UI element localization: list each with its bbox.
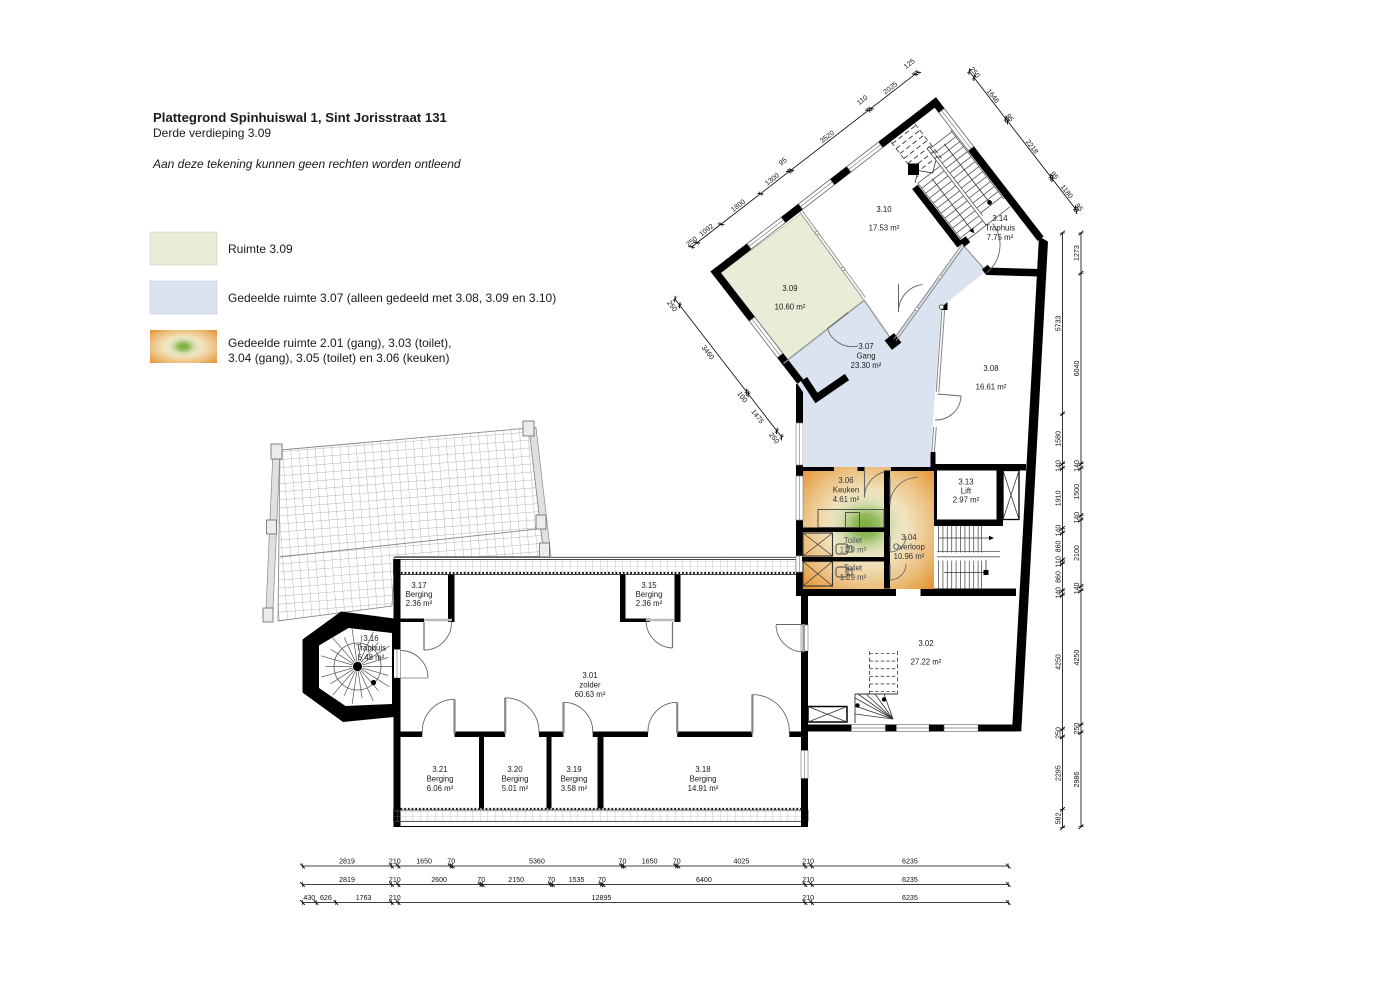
svg-text:3.04: 3.04 [901,533,917,542]
svg-text:Berging: Berging [561,775,588,784]
svg-text:2100: 2100 [1073,545,1081,561]
svg-text:860: 860 [1055,571,1063,583]
svg-text:Gedeelde ruimte 3.07 (alleen g: Gedeelde ruimte 3.07 (alleen gedeeld met… [228,291,556,305]
svg-text:250: 250 [1055,727,1063,739]
svg-text:2150: 2150 [508,876,524,884]
svg-text:210: 210 [802,894,814,902]
svg-text:210: 210 [389,894,401,902]
svg-text:60.63 m²: 60.63 m² [575,690,606,699]
svg-text:5733: 5733 [1055,315,1063,331]
svg-text:70: 70 [477,876,485,884]
svg-text:140: 140 [1073,582,1081,594]
svg-text:3.06: 3.06 [838,476,853,485]
svg-text:27.22 m²: 27.22 m² [911,658,942,667]
svg-text:1650: 1650 [642,858,658,866]
svg-text:Toilet: Toilet [844,536,863,545]
svg-text:1500: 1500 [1073,484,1081,500]
svg-text:zolder: zolder [579,681,601,690]
svg-text:1535: 1535 [569,876,585,884]
svg-text:6.06 m²: 6.06 m² [427,784,454,793]
svg-text:Berging: Berging [690,775,717,784]
svg-text:2986: 2986 [1073,772,1081,788]
svg-text:110: 110 [1055,556,1063,567]
svg-text:17.53 m²: 17.53 m² [869,224,900,233]
svg-text:6235: 6235 [902,858,918,866]
svg-text:10.96 m²: 10.96 m² [894,552,925,561]
svg-text:140: 140 [1055,587,1063,599]
svg-text:6235: 6235 [902,876,918,884]
svg-text:3.15: 3.15 [641,581,657,590]
svg-text:2295: 2295 [1055,765,1063,781]
svg-text:250: 250 [1073,723,1081,735]
svg-text:Gang: Gang [856,352,875,361]
svg-text:Berging: Berging [636,590,663,599]
svg-text:3.20: 3.20 [507,765,523,774]
svg-text:Keuken: Keuken [833,486,859,495]
svg-text:3.17: 3.17 [411,581,426,590]
svg-text:2.36 m²: 2.36 m² [406,599,433,608]
svg-text:3.02: 3.02 [918,639,933,648]
svg-text:2819: 2819 [339,876,355,884]
svg-text:5.01 m²: 5.01 m² [502,784,529,793]
svg-text:Berging: Berging [427,775,454,784]
svg-text:3.18: 3.18 [695,765,710,774]
svg-text:3.10: 3.10 [876,205,892,214]
svg-text:Gedeelde ruimte 2.01 (gang), 3: Gedeelde ruimte 2.01 (gang), 3.03 (toile… [228,336,451,350]
svg-text:70: 70 [673,858,681,866]
svg-text:2600: 2600 [431,876,447,884]
svg-text:210: 210 [389,858,401,866]
svg-text:70: 70 [447,858,455,866]
svg-text:70: 70 [547,876,555,884]
svg-text:140: 140 [1073,460,1081,472]
svg-text:210: 210 [802,876,814,884]
svg-text:Ruimte 3.09: Ruimte 3.09 [228,242,293,256]
svg-text:70: 70 [598,876,606,884]
svg-text:Derde verdieping 3.09: Derde verdieping 3.09 [153,126,271,140]
svg-text:140: 140 [1055,460,1063,472]
svg-text:3.16: 3.16 [363,634,378,643]
svg-text:5360: 5360 [529,858,545,866]
svg-text:2819: 2819 [339,858,355,866]
svg-text:2.36 m²: 2.36 m² [636,599,663,608]
svg-text:70: 70 [619,858,627,866]
svg-text:4250: 4250 [1073,650,1081,666]
svg-text:16.61 m²: 16.61 m² [976,383,1007,392]
svg-text:10.60 m²: 10.60 m² [775,303,806,312]
svg-text:4250: 4250 [1055,654,1063,670]
svg-text:1763: 1763 [356,894,372,902]
svg-text:1273: 1273 [1073,245,1081,261]
svg-text:Lift: Lift [961,487,972,496]
svg-text:Aan deze tekening kunnen geen: Aan deze tekening kunnen geen rechten wo… [152,157,461,171]
svg-text:860: 860 [1055,540,1063,552]
svg-text:140: 140 [1073,512,1081,524]
svg-text:582: 582 [1055,813,1063,825]
svg-text:3.13: 3.13 [958,478,973,487]
svg-text:3.14: 3.14 [992,214,1008,223]
svg-text:4025: 4025 [734,858,750,866]
svg-text:2.97 m²: 2.97 m² [953,496,980,505]
svg-text:430: 430 [303,894,315,902]
svg-text:1650: 1650 [416,858,432,866]
svg-text:140: 140 [1055,525,1063,537]
svg-text:12895: 12895 [592,894,612,902]
svg-text:3.21: 3.21 [432,765,447,774]
svg-text:6040: 6040 [1073,360,1081,376]
svg-text:14.91 m²: 14.91 m² [688,784,719,793]
svg-text:Traphuis: Traphuis [356,644,386,653]
svg-text:210: 210 [802,858,814,866]
svg-text:6400: 6400 [696,876,712,884]
svg-text:Traphuis: Traphuis [985,224,1015,233]
svg-text:Toilet: Toilet [844,564,863,573]
svg-text:Berging: Berging [406,590,433,599]
svg-text:Overloop: Overloop [893,543,925,552]
svg-text:Plattegrond Spinhuiswal 1, Sin: Plattegrond Spinhuiswal 1, Sint Jorisstr… [153,110,447,125]
svg-text:1.29 m²: 1.29 m² [840,546,867,555]
svg-text:Berging: Berging [502,775,529,784]
svg-text:3.09: 3.09 [782,284,797,293]
svg-text:1580: 1580 [1055,431,1063,447]
svg-text:3.07: 3.07 [858,342,873,351]
svg-text:23.30 m²: 23.30 m² [851,361,882,370]
svg-text:1910: 1910 [1055,490,1063,506]
svg-text:6235: 6235 [902,894,918,902]
svg-text:1.29 m²: 1.29 m² [840,573,867,582]
svg-text:3.19: 3.19 [566,765,581,774]
svg-text:5.48 m²: 5.48 m² [358,653,385,662]
svg-text:626: 626 [320,894,332,902]
svg-text:3.01: 3.01 [582,671,597,680]
svg-text:3.04 (gang), 3.05 (toilet) en: 3.04 (gang), 3.05 (toilet) en 3.06 (keuk… [228,351,449,365]
svg-text:3.58 m²: 3.58 m² [561,784,588,793]
svg-text:210: 210 [389,876,401,884]
svg-text:3.08: 3.08 [983,364,998,373]
svg-text:4.61 m²: 4.61 m² [833,495,860,504]
